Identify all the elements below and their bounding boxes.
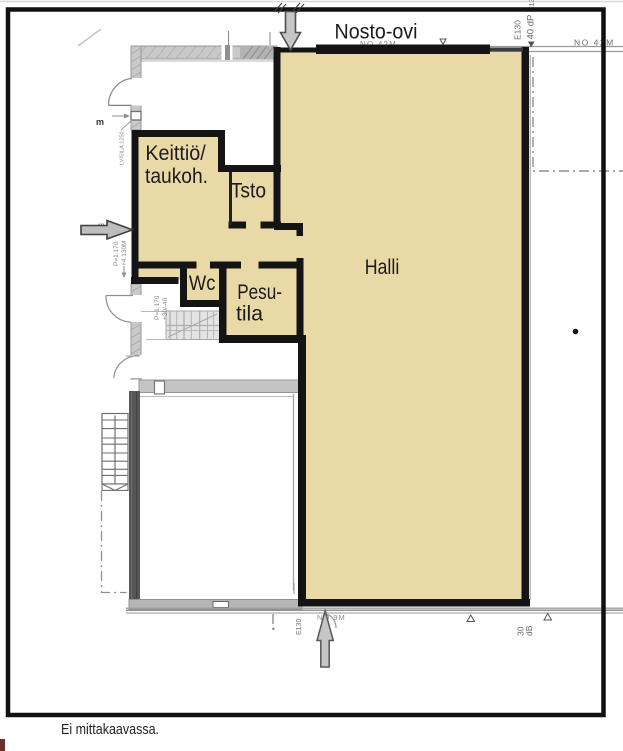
- svg-text:LVISILA.1250.: LVISILA.1250.: [120, 129, 126, 165]
- svg-text:E130: E130: [296, 619, 303, 635]
- svg-text:Wc: Wc: [189, 271, 216, 295]
- svg-text:NO 42M: NO 42M: [574, 38, 615, 48]
- svg-text:Ei mittakaavassa.: Ei mittakaavassa.: [61, 721, 159, 738]
- svg-text:+30/-40: +30/-40: [162, 297, 169, 320]
- svg-text:E130: E130: [513, 20, 523, 40]
- svg-text:tila: tila: [236, 302, 263, 326]
- svg-text:taukoh.: taukoh.: [145, 164, 208, 188]
- svg-text:+4.130M: +4.130M: [121, 241, 128, 266]
- svg-text:Tsto: Tsto: [231, 179, 266, 203]
- svg-text:P=1.170: P=1.170: [113, 241, 120, 266]
- svg-text:40 dP: 40 dP: [526, 15, 537, 40]
- svg-text:dB: dB: [524, 625, 534, 636]
- svg-text:Keittiö/: Keittiö/: [145, 141, 205, 165]
- svg-text:Nosto-ovi: Nosto-ovi: [335, 20, 418, 44]
- svg-text:m: m: [96, 117, 104, 127]
- svg-text:P=1.170: P=1.170: [154, 295, 161, 320]
- svg-text:Pesu-: Pesu-: [237, 280, 282, 304]
- svg-text:Halli: Halli: [365, 255, 400, 279]
